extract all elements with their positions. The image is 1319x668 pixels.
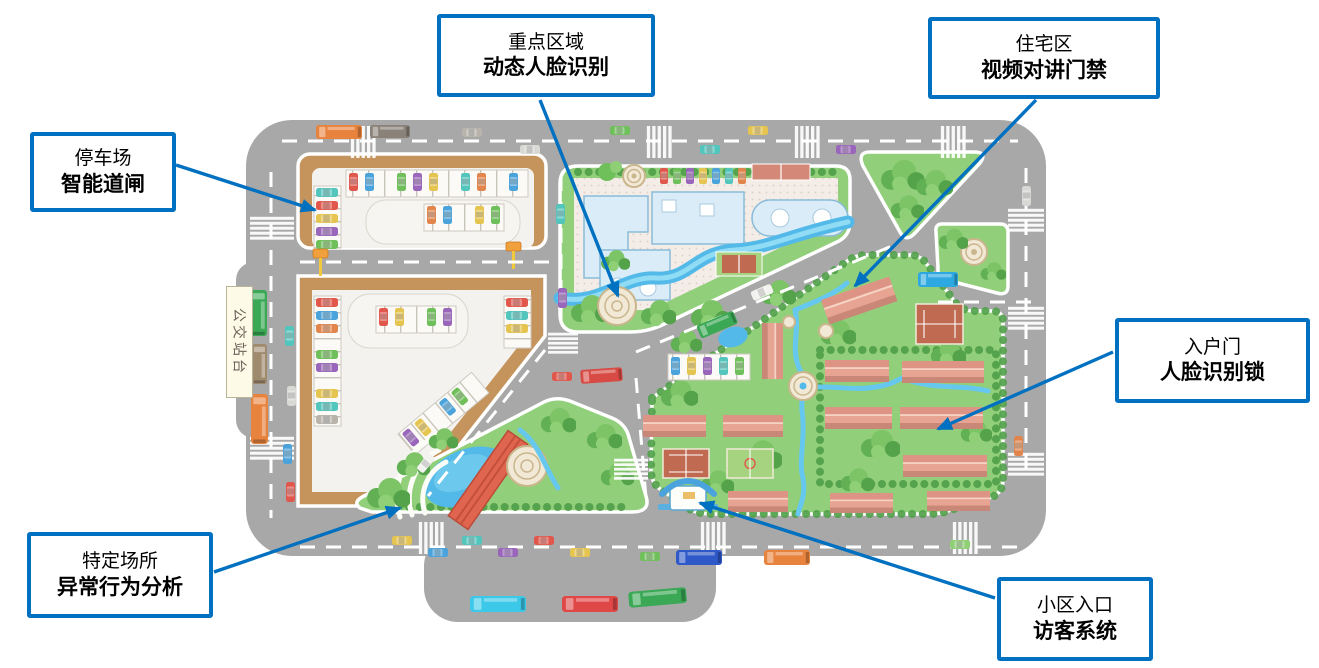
tennis-court-2 bbox=[916, 304, 963, 344]
callout-entrance-feature: 访客系统 bbox=[1033, 618, 1117, 645]
callout-parking-title: 停车场 bbox=[74, 146, 131, 171]
parking-lot-upper bbox=[298, 154, 546, 249]
callout-residential-feature: 视频对讲门禁 bbox=[981, 57, 1107, 84]
smart-community-diagram: 公交站台 停车场 智能道闸 重点区域 动态人脸识别 住宅区 视频对讲门禁 入户门… bbox=[0, 0, 1319, 668]
callout-residential-title: 住宅区 bbox=[1015, 32, 1072, 57]
callout-key-area-title: 重点区域 bbox=[508, 30, 584, 55]
callout-special-place-title: 特定场所 bbox=[82, 549, 158, 574]
bus-stop-label: 公交站台 bbox=[226, 286, 253, 398]
callout-parking-feature: 智能道闸 bbox=[61, 171, 145, 198]
callout-special-place: 特定场所 异常行为分析 bbox=[27, 532, 213, 618]
callout-special-place-feature: 异常行为分析 bbox=[57, 574, 183, 601]
callout-entry-door-title: 入户门 bbox=[1184, 335, 1241, 360]
callout-parking: 停车场 智能道闸 bbox=[30, 132, 176, 212]
callout-key-area-feature: 动态人脸识别 bbox=[483, 54, 609, 81]
tennis-court bbox=[663, 449, 709, 478]
callout-key-area: 重点区域 动态人脸识别 bbox=[437, 14, 655, 97]
callout-entry-door: 入户门 人脸识别锁 bbox=[1115, 318, 1310, 403]
callout-entry-door-feature: 人脸识别锁 bbox=[1160, 359, 1265, 386]
callout-entrance: 小区入口 访客系统 bbox=[997, 577, 1153, 661]
basketball-court bbox=[727, 449, 773, 478]
callout-residential: 住宅区 视频对讲门禁 bbox=[928, 17, 1160, 99]
callout-entrance-title: 小区入口 bbox=[1037, 593, 1113, 618]
